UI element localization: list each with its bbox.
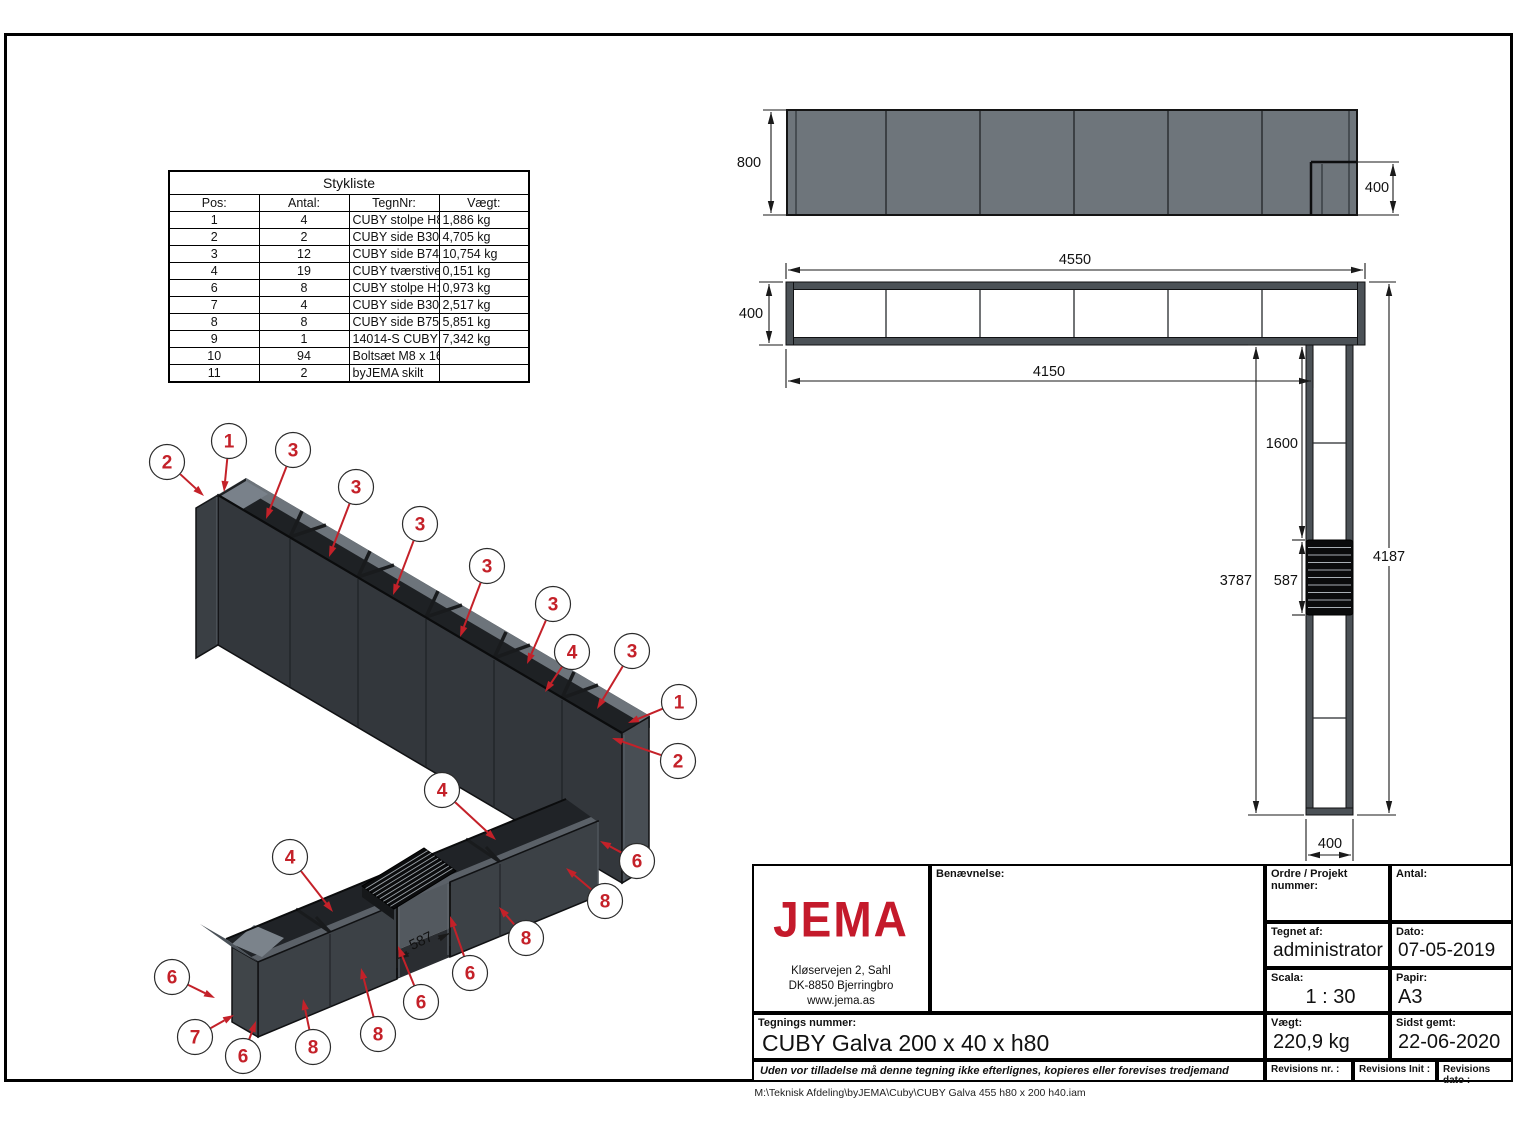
revisions-init-label: Revisions Init :: [1355, 1062, 1435, 1075]
balloon-number: 3: [288, 441, 299, 462]
balloon-number: 6: [465, 964, 476, 985]
balloon-number: 6: [238, 1047, 249, 1068]
balloon-number: 2: [162, 453, 173, 474]
parts-table-row: 74CUBY side B300 H4002,517 kg: [169, 297, 529, 314]
isometric-view: [196, 478, 650, 1037]
logo-cell: JEMA Kløservejen 2, Sahl DK-8850 Bjerrin…: [752, 864, 930, 1013]
balloon-number: 4: [437, 781, 448, 802]
balloon-number: 3: [351, 478, 362, 499]
sidst-gemt-label: Sidst gemt:: [1392, 1015, 1511, 1029]
balloon-number: 1: [674, 693, 685, 714]
parts-col-header: Antal:: [259, 195, 349, 212]
parts-table-row: 14CUBY stolpe H800 galva1,886 kg: [169, 212, 529, 229]
jema-logo: JEMA: [754, 890, 928, 948]
dim-label-4150: 4150: [1033, 364, 1065, 380]
plan-view: [759, 263, 1396, 861]
disclaimer-text: Uden vor tilladelse må denne tegning ikk…: [754, 1062, 1263, 1077]
file-path: M:\Teknisk Afdeling\byJEMA\Cuby\CUBY Gal…: [560, 1087, 1280, 1099]
parts-col-header: Vægt:: [439, 195, 529, 212]
tegnet-af-value: administrator: [1267, 938, 1388, 962]
dim-label-800: 800: [737, 155, 761, 171]
balloon-number: 6: [632, 852, 643, 873]
balloon-number: 6: [167, 968, 178, 989]
company-address: Kløservejen 2, Sahl DK-8850 Bjerringbro …: [754, 964, 928, 1009]
parts-table-row: 312CUBY side B741,667 H800 Galva10,754 k…: [169, 246, 529, 263]
parts-table-title: Stykliste: [169, 171, 529, 195]
revisions-init-cell: Revisions Init :: [1353, 1060, 1437, 1082]
parts-table-row: 22CUBY side B300 H800 Galva4,705 kg: [169, 229, 529, 246]
dim-label-4550: 4550: [1059, 252, 1091, 268]
tegnet-af-cell: Tegnet af: administrator: [1265, 922, 1390, 968]
balloon-number: 7: [190, 1028, 201, 1049]
scala-cell: Scala: 1 : 30: [1265, 968, 1390, 1013]
parts-table-row: 419CUBY tværstiver 400 Galva0,151 kg: [169, 263, 529, 280]
papir-cell: Papir: A3: [1390, 968, 1513, 1013]
parts-col-header: Pos:: [169, 195, 259, 212]
balloon-number: 8: [600, 892, 611, 913]
dim-label-400: 400: [739, 306, 763, 322]
antal-cell: Antal:: [1390, 864, 1513, 922]
balloon-number: 3: [548, 595, 559, 616]
balloon-number: 4: [285, 848, 296, 869]
papir-value: A3: [1392, 984, 1511, 1009]
tegnings-nummer-cell: Tegnings nummer: CUBY Galva 200 x 40 x h…: [752, 1013, 1265, 1060]
low-wing-h400: [200, 799, 598, 1037]
balloon-number: 3: [482, 557, 493, 578]
parts-table-row: 68CUBY stolpe H:400 Galva0,973 kg: [169, 280, 529, 297]
antal-label: Antal:: [1392, 866, 1511, 880]
vaegt-label: Vægt:: [1267, 1015, 1388, 1029]
revisions-nr-cell: Revisions nr. :: [1265, 1060, 1353, 1082]
dim-label-587: 587: [1274, 573, 1298, 589]
parts-table-row: 88CUBY side B750 H400 - Galva5,851 kg: [169, 314, 529, 331]
balloon-number: 6: [416, 993, 427, 1014]
balloon-number: 8: [308, 1038, 319, 1059]
dim-label-3787: 3787: [1220, 573, 1252, 589]
revisions-dato-cell: Revisions dato :: [1437, 1060, 1513, 1082]
parts-table-row: 1094Boltsæt M8 x 16: [169, 348, 529, 365]
dato-cell: Dato: 07-05-2019: [1390, 922, 1513, 968]
front-elevation-view: [763, 110, 1399, 215]
balloon-number: 4: [567, 643, 578, 664]
benaevnelse-cell: Benævnelse:: [930, 864, 1265, 1013]
dato-value: 07-05-2019: [1392, 938, 1511, 962]
parts-col-header: TegnNr:: [349, 195, 439, 212]
ordre-cell: Ordre / Projekt nummer:: [1265, 864, 1390, 922]
tegnet-af-label: Tegnet af:: [1267, 924, 1388, 938]
dim-label-400: 400: [1365, 180, 1389, 196]
drawing-number: CUBY Galva 200 x 40 x h80: [754, 1029, 1263, 1057]
plan-dimensions: [759, 263, 1396, 861]
scala-value: 1 : 30: [1267, 984, 1388, 1009]
sidst-gemt-value: 22-06-2020: [1392, 1029, 1511, 1054]
dim-label-1600: 1600: [1266, 436, 1298, 452]
parts-table-row: 9114014-S CUBY bænk sort lille7,342 kg: [169, 331, 529, 348]
scala-label: Scala:: [1267, 970, 1388, 984]
dim-label-4187: 4187: [1373, 549, 1405, 565]
parts-list-table: StyklistePos:Antal:TegnNr:Vægt:14CUBY st…: [168, 170, 530, 383]
parts-table-row: 112byJEMA skilt: [169, 365, 529, 383]
dato-label: Dato:: [1392, 924, 1511, 938]
disclaimer-cell: Uden vor tilladelse må denne tegning ikk…: [752, 1060, 1265, 1082]
dim-label-400: 400: [1318, 836, 1342, 852]
balloon-number: 1: [224, 432, 235, 453]
balloon-number: 3: [415, 515, 426, 536]
balloon-number: 8: [373, 1025, 384, 1046]
cad-drawing-page: { "footer_path": "M:\\Teknisk Afdeling\\…: [0, 0, 1519, 1121]
tegnings-nummer-label: Tegnings nummer:: [754, 1015, 1263, 1029]
revisions-dato-label: Revisions dato :: [1439, 1062, 1511, 1086]
ordre-label: Ordre / Projekt nummer:: [1267, 866, 1388, 892]
vaegt-cell: Vægt: 220,9 kg: [1265, 1013, 1390, 1060]
bench-plan: [1306, 540, 1353, 615]
balloon-number: 8: [521, 929, 532, 950]
papir-label: Papir:: [1392, 970, 1511, 984]
balloon-number: 3: [627, 642, 638, 663]
revisions-nr-label: Revisions nr. :: [1267, 1062, 1351, 1075]
vaegt-value: 220,9 kg: [1267, 1029, 1388, 1054]
balloon-number: 2: [673, 752, 684, 773]
sidst-gemt-cell: Sidst gemt: 22-06-2020: [1390, 1013, 1513, 1060]
benaevnelse-label: Benævnelse:: [932, 866, 1263, 880]
